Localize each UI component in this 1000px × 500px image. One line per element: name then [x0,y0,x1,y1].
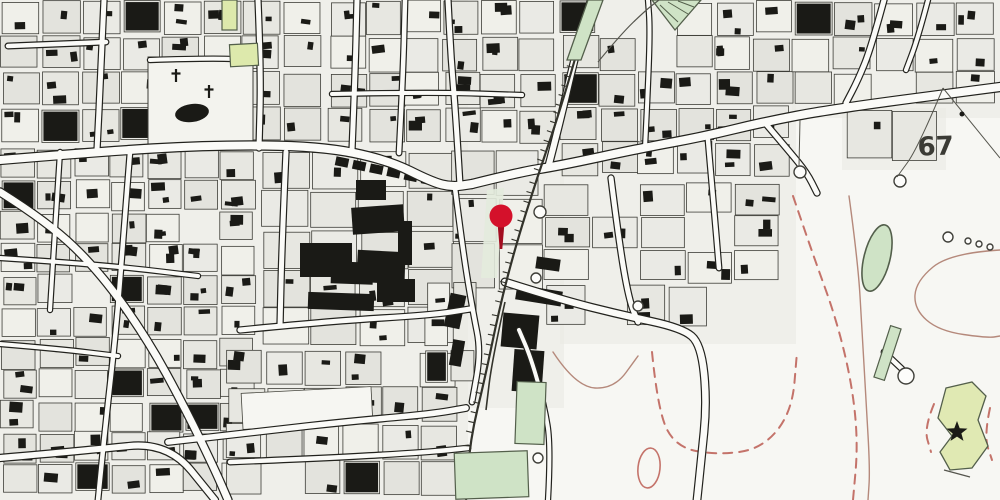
road [332,93,522,95]
ring-symbol [633,301,643,311]
churchyard [148,57,253,145]
ring-symbol [894,175,906,187]
ring-symbol [943,232,953,242]
map-viewport[interactable]: 67 [0,0,1000,500]
ring-symbol [976,241,982,247]
green-area [229,43,258,66]
large-building [398,221,412,265]
ring-symbol [794,166,806,178]
town-map-svg: 67 [0,0,1000,500]
ring-symbol [965,238,971,244]
city-block-east-mid [544,183,779,283]
large-building [351,204,405,235]
ring-symbol [534,206,546,218]
ring-symbol [531,273,541,283]
road [258,0,260,148]
pin-head [490,205,513,228]
large-building [308,292,375,311]
ring-symbol [987,244,993,250]
green-area [938,382,988,470]
map-dot [960,112,965,117]
labels-layer: 67 [917,131,954,162]
large-building [356,180,386,200]
green-area [515,382,546,445]
ring-symbol [533,453,543,463]
green-area [222,0,237,30]
spot-height-label: 67 [917,131,954,162]
green-area [454,451,529,500]
ring-symbol [898,368,914,384]
large-building [377,279,415,302]
